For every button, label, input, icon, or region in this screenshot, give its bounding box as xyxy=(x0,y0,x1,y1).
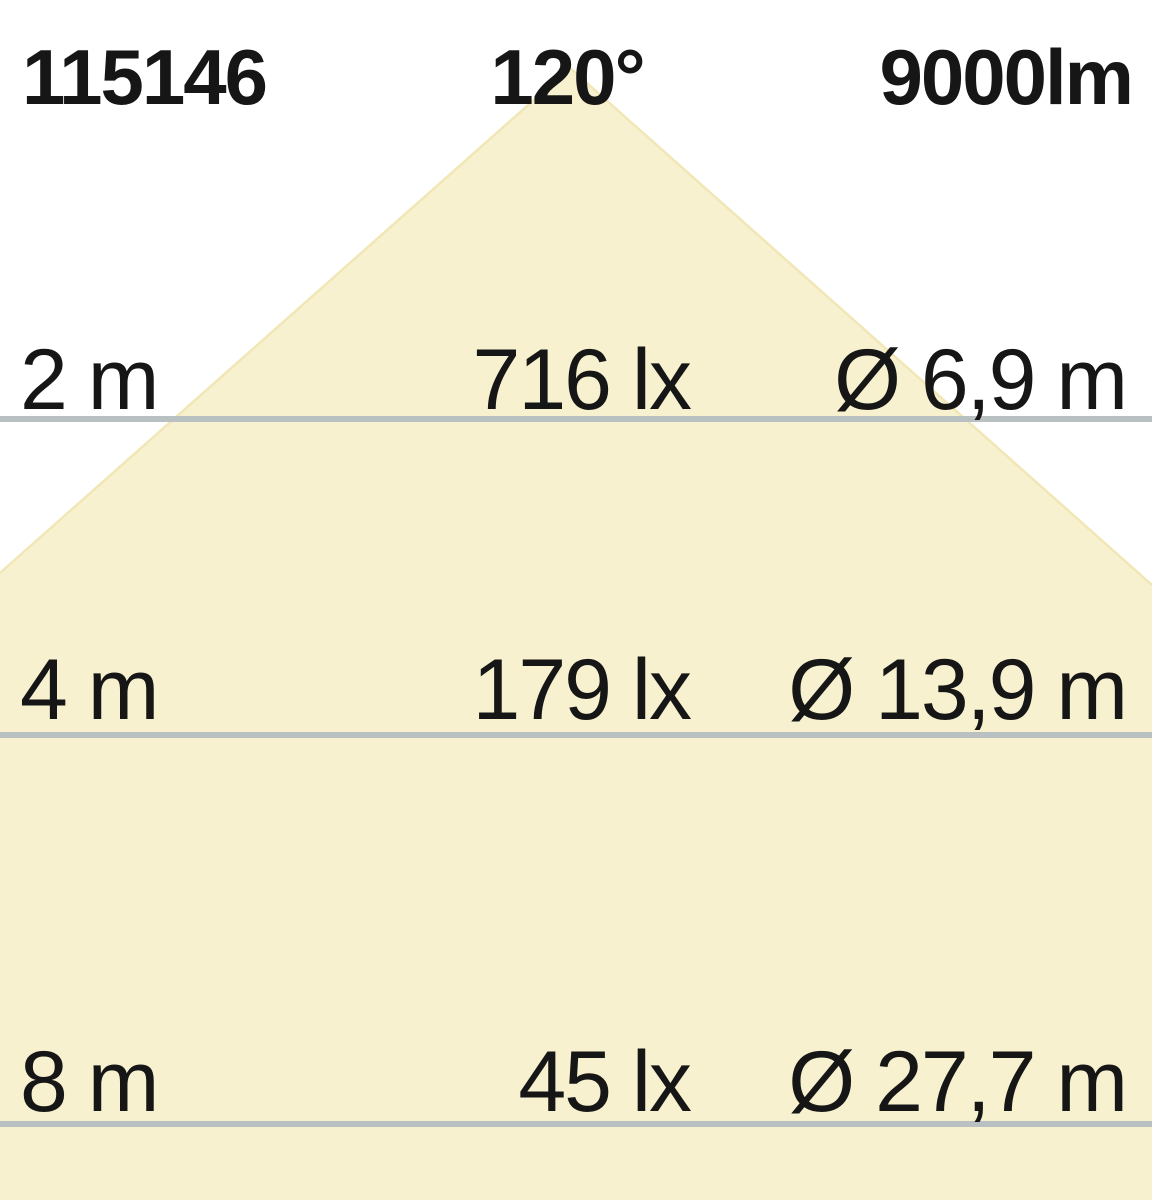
light-cone xyxy=(0,68,1152,1200)
diameter-value-row1: Ø 6,9 m xyxy=(834,337,1126,423)
distance-label-row2: 4 m xyxy=(20,647,157,733)
light-cone-canvas xyxy=(0,0,1152,1200)
diameter-value-row3: Ø 27,7 m xyxy=(788,1039,1126,1125)
beam-angle-label: 120° xyxy=(490,38,643,116)
photometric-diagram: 115146 120° 9000lm 2 m 716 lx Ø 6,9 m 4 … xyxy=(0,0,1152,1200)
distance-label-row1: 2 m xyxy=(20,337,157,423)
illuminance-value-row3: 45 lx xyxy=(518,1039,690,1125)
luminous-flux-label: 9000lm xyxy=(879,38,1132,116)
illuminance-value-row2: 179 lx xyxy=(473,647,691,733)
diameter-value-row2: Ø 13,9 m xyxy=(788,647,1126,733)
distance-label-row3: 8 m xyxy=(20,1039,157,1125)
article-number: 115146 xyxy=(22,38,266,116)
illuminance-value-row1: 716 lx xyxy=(473,337,691,423)
